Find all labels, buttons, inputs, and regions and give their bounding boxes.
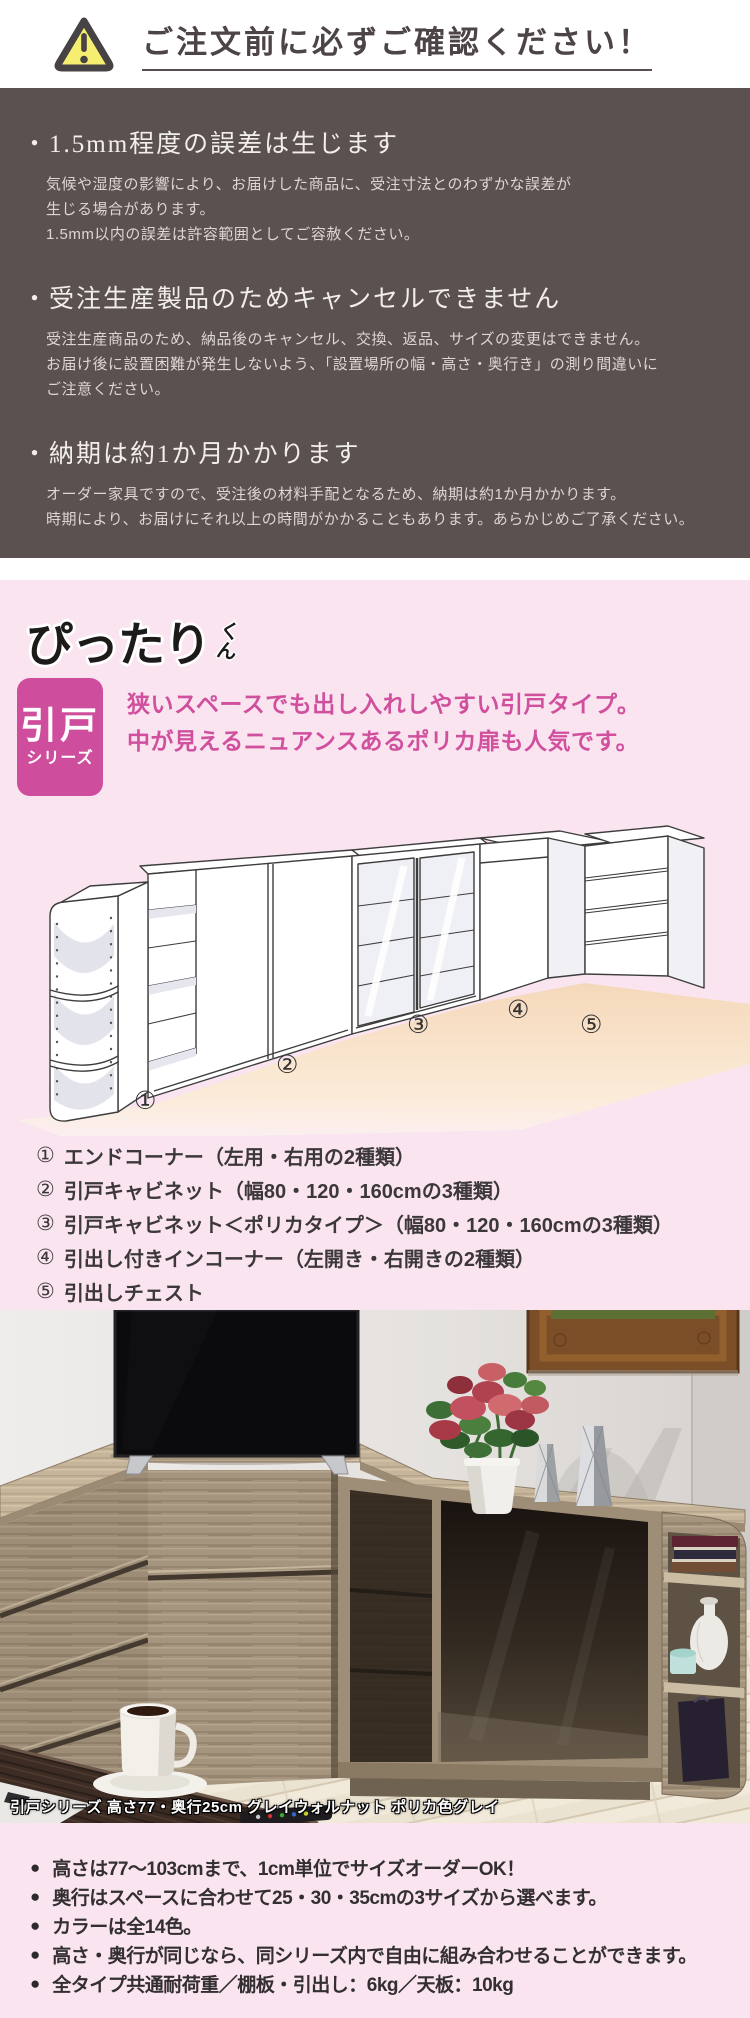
series-intro-row: 引戸 シリーズ 狭いスペースでも出し入れしやすい引戸タイプ。 中が見えるニュアン…	[17, 678, 750, 800]
furniture-line-drawing: ① ② ③ ④ ⑤	[0, 806, 750, 1136]
features-section: ● 高さは77～103cmまで、1cm単位でサイズオーダーOK！ ● 奥行はスペ…	[0, 1823, 750, 2018]
page: ご注文前に必ずご確認ください！ ・1.5mm程度の誤差は生じます 気候や湿度の影…	[0, 0, 750, 2018]
notice-item-tolerance: ・1.5mm程度の誤差は生じます 気候や湿度の影響により、お届けした商品に、受注…	[22, 124, 722, 247]
lineup-item-label: エンドコーナー（左用・右用の2種類）	[64, 1141, 415, 1170]
lineup-item-number: ④	[36, 1245, 55, 1269]
badge-line2: シリーズ	[26, 748, 93, 770]
notice-header: ご注文前に必ずご確認ください！	[0, 0, 750, 88]
lineup-list: ① エンドコーナー（左用・右用の2種類） ② 引戸キャビネット（幅80・120・…	[0, 1138, 750, 1308]
lineup-item-label: 引戸キャビネット＜ポリカタイプ＞（幅80・120・160cmの3種類）	[64, 1209, 673, 1238]
pittarikun-logo: ぴったりくん	[26, 606, 750, 670]
feature-row: ● 高さは77～103cmまで、1cm単位でサイズオーダーOK！	[30, 1853, 750, 1882]
lineup-item-label: 引戸キャビネット（幅80・120・160cmの3種類）	[64, 1175, 513, 1204]
hikido-series-badge: 引戸 シリーズ	[17, 678, 103, 796]
bullet-icon: ●	[30, 1974, 40, 1994]
notice-title: ご注文前に必ずご確認ください！	[142, 17, 652, 71]
feature-text: 全タイプ共通耐荷重／棚板・引出し：6kg／天板：10kg	[52, 1970, 513, 1997]
illustration-label-2: ②	[276, 1052, 298, 1077]
feature-row: ● 奥行はスペースに合わせて25・30・35cmの3サイズから選べます。	[30, 1882, 750, 1911]
feature-text: 奥行はスペースに合わせて25・30・35cmの3サイズから選べます。	[52, 1883, 607, 1910]
logo-main-text: ぴったり	[26, 618, 210, 671]
series-section: ぴったりくん 引戸 シリーズ 狭いスペースでも出し入れしやすい引戸タイプ。 中が…	[0, 580, 750, 1310]
illustration-label-3: ③	[407, 1012, 429, 1037]
tv	[115, 1310, 358, 1474]
white-gap	[0, 558, 750, 580]
notice-item-heading: ・1.5mm程度の誤差は生じます	[22, 124, 722, 160]
lineup-item-label: 引出し付きインコーナー（左開き・右開きの2種類）	[64, 1243, 535, 1272]
dark-box	[678, 1698, 729, 1782]
wall-frame	[528, 1310, 738, 1376]
photo-caption: 引戸シリーズ 高さ77・奥行25cm グレイウォルナット ポリカ色グレイ	[10, 1796, 500, 1817]
illustration-label-4: ④	[507, 997, 529, 1022]
feature-text: 高さ・奥行が同じなら、同シリーズ内で自由に組み合わせることができます。	[52, 1941, 697, 1968]
lineup-item: ③ 引戸キャビネット＜ポリカタイプ＞（幅80・120・160cmの3種類）	[36, 1206, 750, 1240]
notice-item-body: 気候や湿度の影響により、お届けした商品に、受注寸法とのわずかな誤差が 生じる場合…	[46, 172, 722, 247]
feature-text: カラーは全14色。	[52, 1912, 202, 1939]
feature-row: ● 全タイプ共通耐荷重／棚板・引出し：6kg／天板：10kg	[30, 1969, 750, 1998]
books	[672, 1536, 738, 1572]
lineup-item: ⑤ 引出しチェスト	[36, 1274, 750, 1308]
notice-item-body: オーダー家具ですので、受注後の材料手配となるため、納期は約1か月かかります。 時…	[46, 482, 722, 532]
bullet-icon: ●	[30, 1916, 40, 1936]
lineup-item: ④ 引出し付きインコーナー（左開き・右開きの2種類）	[36, 1240, 750, 1274]
notice-item-body: 受注生産商品のため、納品後のキャンセル、交換、返品、サイズの変更はできません。 …	[46, 327, 722, 402]
lineup-item-number: ⑤	[36, 1279, 55, 1303]
lineup-item: ① エンドコーナー（左用・右用の2種類）	[36, 1138, 750, 1172]
lineup-item-number: ③	[36, 1211, 55, 1235]
teal-cup	[670, 1649, 696, 1675]
lineup-item: ② 引戸キャビネット（幅80・120・160cmの3種類）	[36, 1172, 750, 1206]
feature-row: ● カラーは全14色。	[30, 1911, 750, 1940]
photo-scene-svg	[0, 1310, 750, 1823]
notice-item-heading: ・受注生産製品のためキャンセルできません	[22, 279, 722, 315]
feature-row: ● 高さ・奥行が同じなら、同シリーズ内で自由に組み合わせることができます。	[30, 1940, 750, 1969]
warning-triangle-icon	[54, 16, 114, 72]
lineup-item-number: ①	[36, 1143, 55, 1167]
illustration-label-5: ⑤	[580, 1012, 602, 1037]
line-drawing-svg	[0, 806, 750, 1136]
product-photo: 引戸シリーズ 高さ77・奥行25cm グレイウォルナット ポリカ色グレイ	[0, 1310, 750, 1823]
notice-item-delivery: ・納期は約1か月かかります オーダー家具ですので、受注後の材料手配となるため、納…	[22, 434, 722, 532]
bullet-icon: ●	[30, 1858, 40, 1878]
notice-section: ・1.5mm程度の誤差は生じます 気候や湿度の影響により、お届けした商品に、受注…	[0, 88, 750, 558]
illustration-label-1: ①	[134, 1088, 156, 1113]
series-catch-copy: 狭いスペースでも出し入れしやすい引戸タイプ。 中が見えるニュアンスあるポリカ扉も…	[127, 686, 640, 760]
badge-line1: 引戸	[20, 704, 100, 748]
logo-suffix-text: くん	[209, 618, 245, 662]
bullet-icon: ●	[30, 1945, 40, 1965]
lineup-item-label: 引出しチェスト	[64, 1277, 204, 1306]
bullet-icon: ●	[30, 1887, 40, 1907]
notice-item-no-cancel: ・受注生産製品のためキャンセルできません 受注生産商品のため、納品後のキャンセル…	[22, 279, 722, 402]
notice-item-heading: ・納期は約1か月かかります	[22, 434, 722, 470]
feature-text: 高さは77～103cmまで、1cm単位でサイズオーダーOK！	[52, 1854, 525, 1881]
lineup-item-number: ②	[36, 1177, 55, 1201]
